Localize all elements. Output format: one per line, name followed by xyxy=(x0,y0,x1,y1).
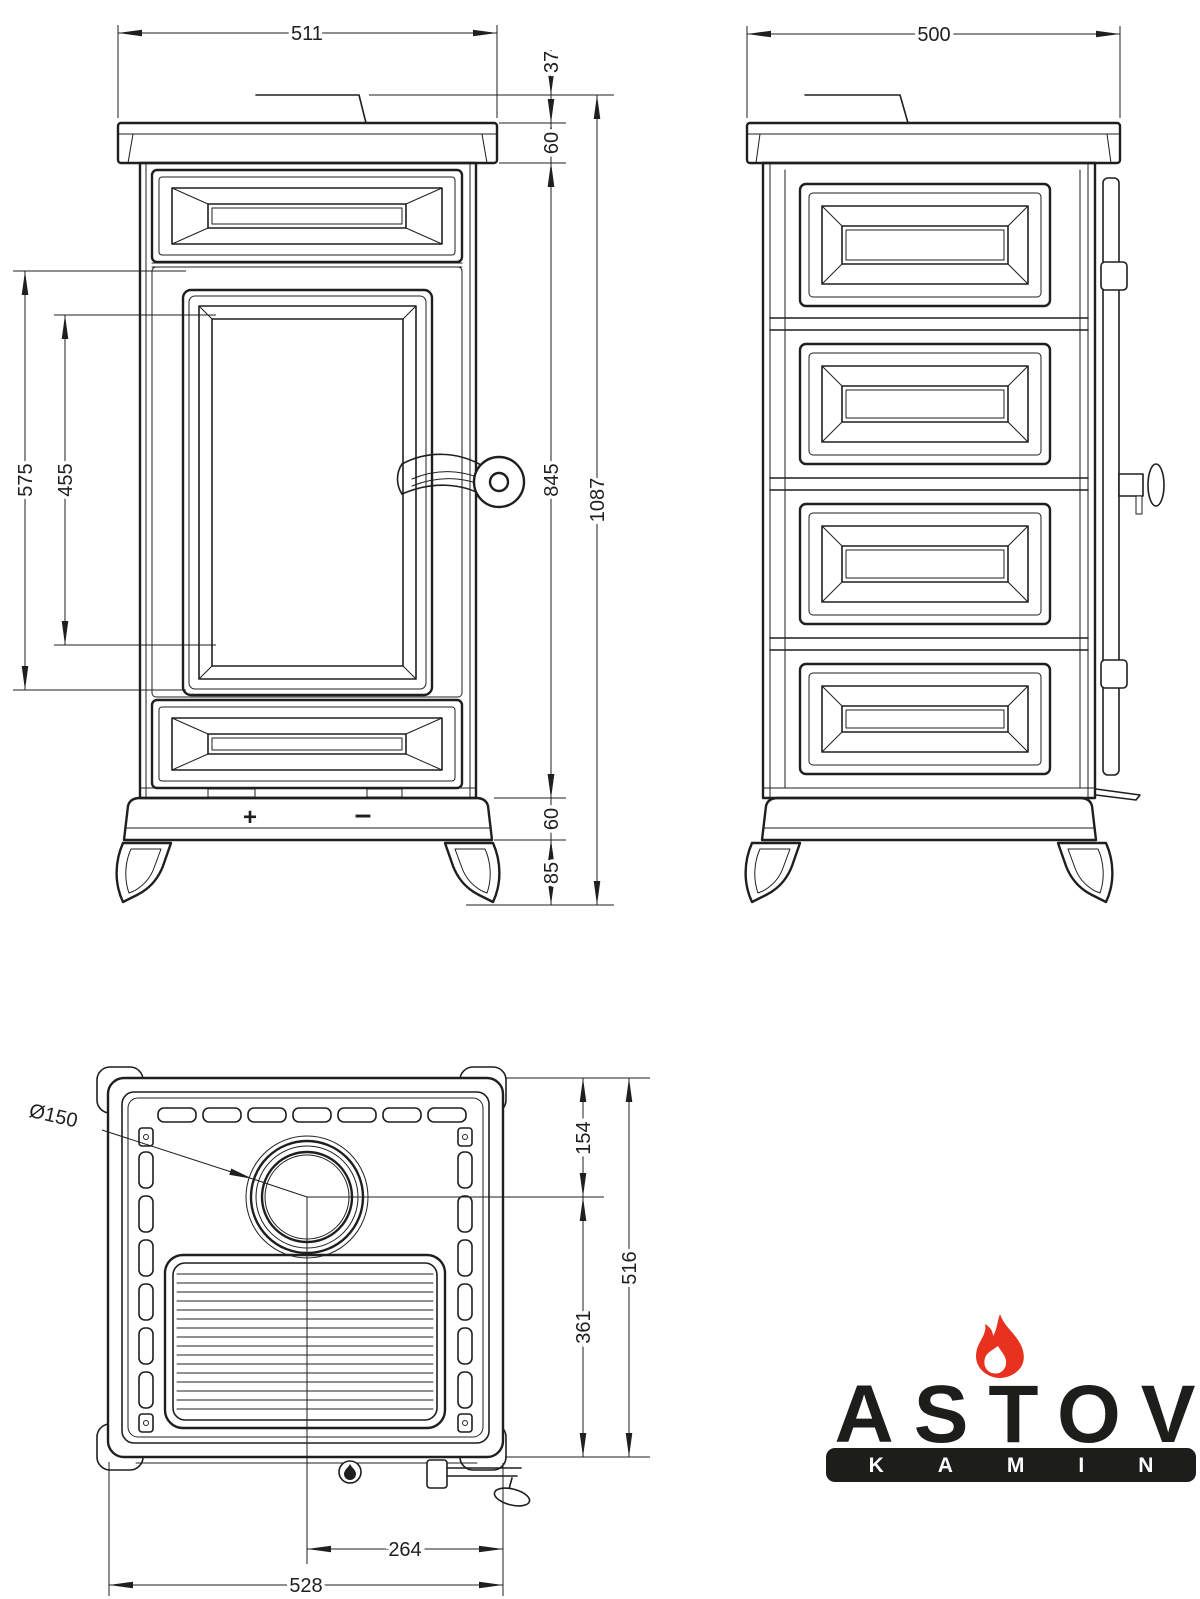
dim-total-depth: 516 xyxy=(619,1251,641,1284)
front-dimensions: 511 37 60 845 60 85 1087 575 455 xyxy=(15,23,609,905)
front-bottom-panel xyxy=(152,700,462,788)
dim-door-height: 575 xyxy=(15,463,37,496)
logo-tagline-text: KAMIN xyxy=(869,1454,1200,1477)
front-top-panel xyxy=(152,170,462,262)
dim-depth: 500 xyxy=(917,24,950,46)
dim-flue-center-offset: 264 xyxy=(388,1539,421,1561)
air-control-plus: + xyxy=(243,804,257,831)
dim-plinth-height: 60 xyxy=(541,808,563,830)
side-plinth xyxy=(762,798,1096,840)
dim-flue-diameter: Ø150 xyxy=(27,1100,80,1132)
air-control-minus: – xyxy=(355,798,372,831)
ash-lever xyxy=(1096,789,1140,800)
front-door xyxy=(183,290,432,695)
side-flue-lip xyxy=(797,95,908,123)
side-door-edge xyxy=(1101,178,1164,775)
side-body xyxy=(763,163,1095,798)
front-plinth: + – xyxy=(124,798,492,840)
dim-flue-center-to-back: 154 xyxy=(573,1121,595,1154)
dim-total-width: 528 xyxy=(289,1575,322,1597)
front-leg-left xyxy=(117,843,171,902)
front-top-plate xyxy=(118,123,497,163)
top-view: Ø150 154 361 516 264 528 xyxy=(27,1067,650,1597)
logo-brand-text: ASTOV xyxy=(835,1369,1200,1460)
technical-drawing-page: + – 511 37 60 845 xyxy=(0,0,1200,1599)
flame-mark xyxy=(339,1461,361,1483)
grate-handle xyxy=(427,1460,531,1509)
side-top-plate xyxy=(747,123,1120,163)
side-door-knob xyxy=(1119,464,1164,514)
side-panel-4 xyxy=(800,664,1050,774)
side-panel-1 xyxy=(800,184,1050,306)
side-leg-front xyxy=(746,843,800,902)
front-flue-lip xyxy=(249,95,366,123)
side-dimensions: 500 xyxy=(747,24,1120,46)
door-hinge-top xyxy=(1101,262,1127,290)
front-door-glass xyxy=(212,319,403,666)
side-view: 500 xyxy=(746,24,1164,902)
dim-top-width: 511 xyxy=(291,23,323,45)
dim-body-height: 845 xyxy=(541,463,563,496)
dim-flue-center-to-front: 361 xyxy=(573,1310,595,1343)
dim-glass-height: 455 xyxy=(55,463,77,496)
dim-top-plate-height: 60 xyxy=(541,132,563,154)
stove-dimension-drawing: + – 511 37 60 845 xyxy=(0,0,1200,1599)
dim-total-height: 1087 xyxy=(587,478,609,523)
side-leg-rear xyxy=(1058,843,1112,902)
brand-logo: ASTOV KAMIN xyxy=(826,1314,1200,1482)
dim-leg-height: 85 xyxy=(541,862,563,884)
side-panel-2 xyxy=(800,344,1050,464)
front-leg-right xyxy=(445,843,499,902)
side-panel-3 xyxy=(800,504,1050,624)
front-view: + – 511 37 60 845 xyxy=(13,23,614,905)
door-hinge-bottom xyxy=(1101,660,1127,688)
dim-flue-lip-height: 37 xyxy=(541,51,563,73)
